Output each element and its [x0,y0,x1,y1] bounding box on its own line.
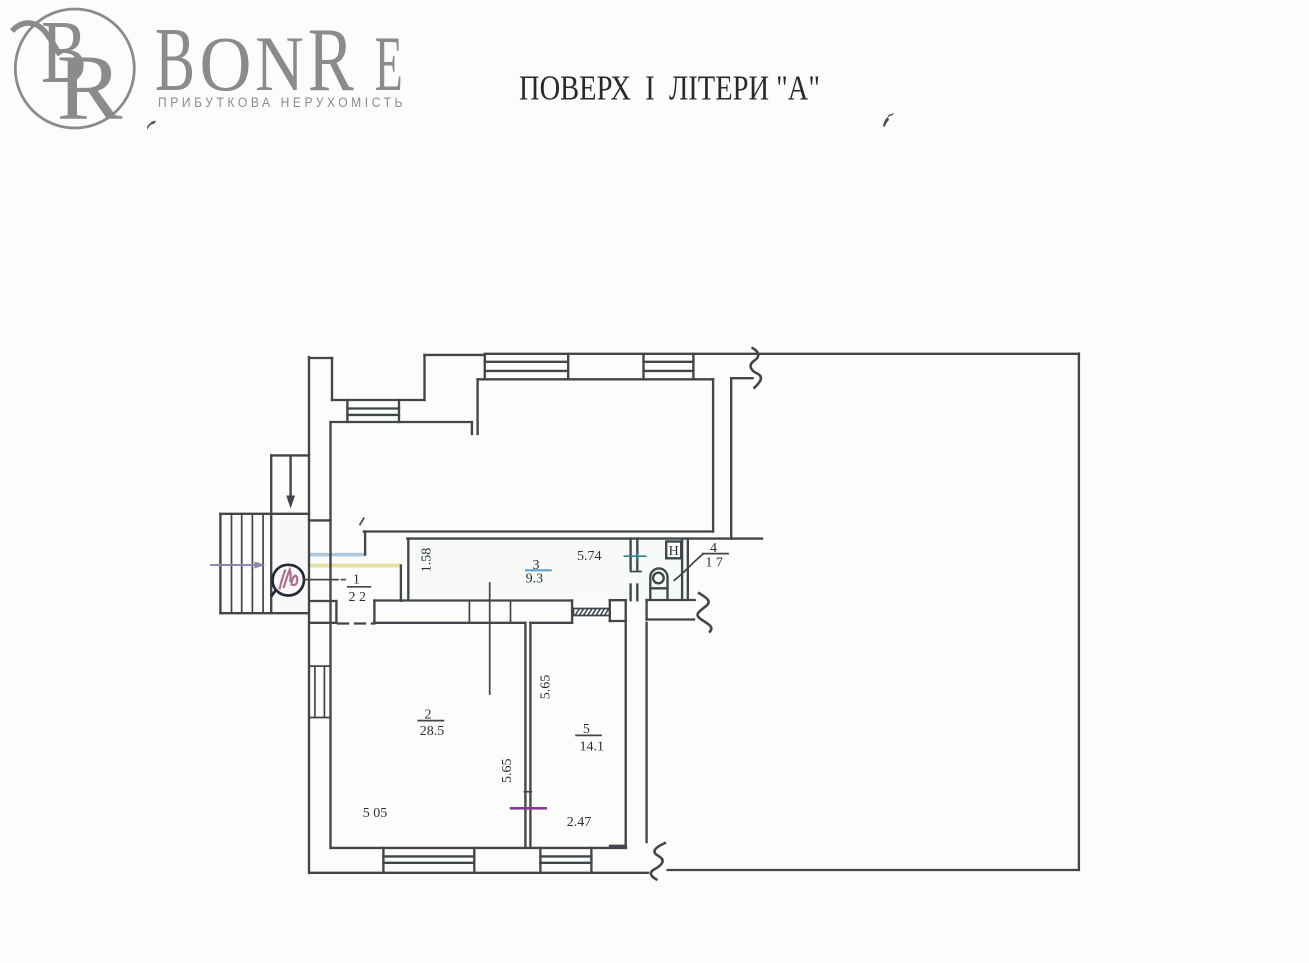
svg-text:28.5: 28.5 [420,724,445,739]
svg-text:9.3: 9.3 [526,572,544,587]
svg-text:1 7: 1 7 [705,555,723,570]
svg-text:5 05: 5 05 [363,806,388,821]
svg-text:2 2: 2 2 [349,590,367,605]
svg-text:5.65: 5.65 [500,758,515,783]
svg-text:ПОВЕРХ І ЛІТЕРИ "А": ПОВЕРХ І ЛІТЕРИ "А" [519,69,820,108]
svg-text:E: E [375,20,403,107]
svg-text:ПРИБУТКОВА НЕРУХОМІСТЬ: ПРИБУТКОВА НЕРУХОМІСТЬ [158,95,406,110]
svg-text:Н: Н [669,544,679,559]
svg-text:2.47: 2.47 [567,815,592,830]
svg-text:5.74: 5.74 [577,549,602,564]
svg-text:1.58: 1.58 [420,548,435,573]
svg-text:R: R [57,37,123,140]
svg-text:14.1: 14.1 [579,740,604,755]
svg-text:O: O [200,20,252,107]
svg-text:1: 1 [353,573,360,588]
svg-text:5.65: 5.65 [539,675,554,700]
svg-text:N: N [255,20,304,107]
